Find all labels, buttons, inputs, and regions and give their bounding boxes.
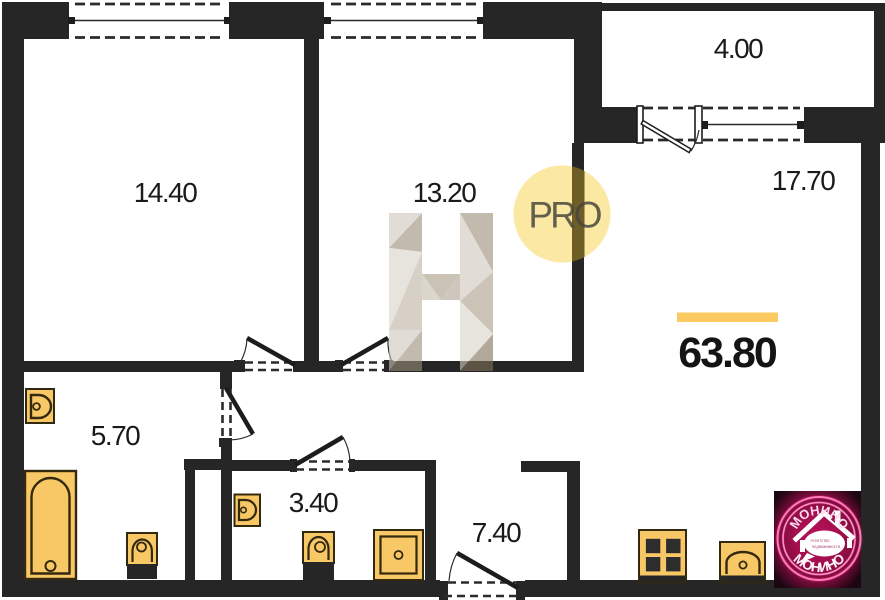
svg-text:13.20: 13.20 <box>413 177 476 208</box>
svg-text:4.00: 4.00 <box>714 33 763 64</box>
svg-text:PRO: PRO <box>528 195 601 236</box>
svg-text:14.40: 14.40 <box>134 177 197 208</box>
svg-text:недвижимости: недвижимости <box>812 544 841 549</box>
svg-text:17.70: 17.70 <box>772 165 835 196</box>
svg-text:5.70: 5.70 <box>91 420 140 451</box>
svg-text:63.80: 63.80 <box>678 329 777 377</box>
svg-text:7.40: 7.40 <box>472 517 521 548</box>
svg-text:3.40: 3.40 <box>289 487 338 518</box>
svg-text:Агентство: Агентство <box>810 538 830 543</box>
